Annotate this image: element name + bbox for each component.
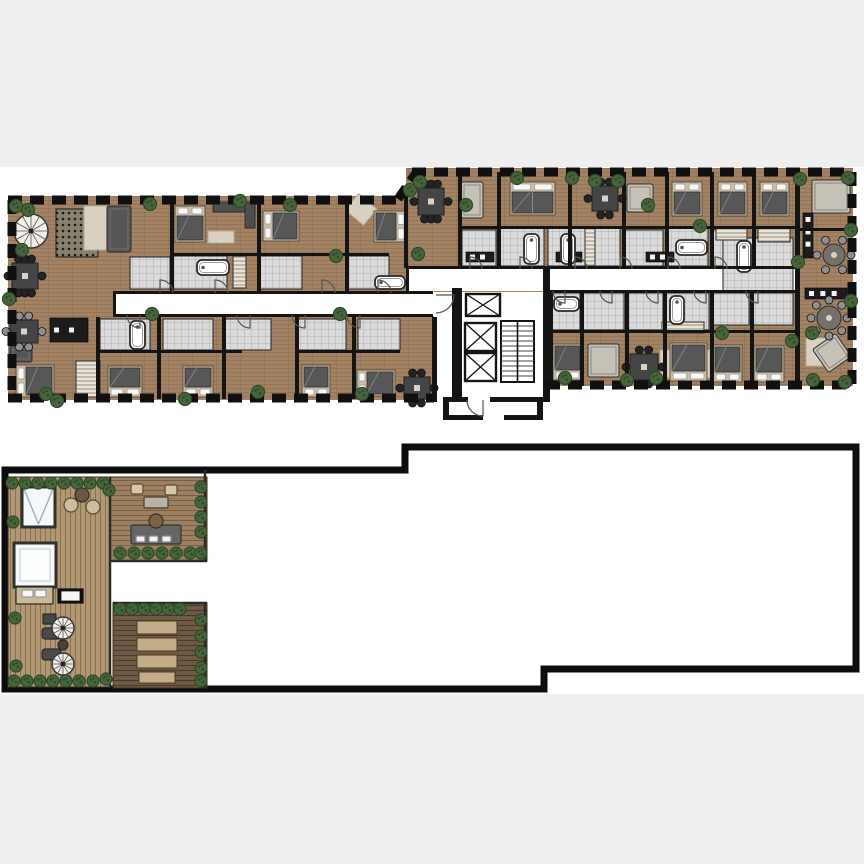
- plant-leaf: [65, 483, 68, 486]
- plant-leaf: [844, 175, 847, 178]
- burner: [832, 291, 837, 296]
- pillow: [359, 373, 365, 381]
- plant-leaf: [145, 550, 148, 553]
- pillow: [689, 184, 699, 190]
- plant-leaf: [22, 480, 25, 483]
- interior-wall: [752, 172, 756, 266]
- plant-foliage: [87, 675, 99, 687]
- plant-foliage: [195, 547, 207, 559]
- plant-icon: [330, 250, 343, 263]
- duvet: [720, 192, 745, 214]
- chair: [15, 343, 23, 351]
- daybed-pillow: [35, 590, 46, 597]
- plant-leaf: [848, 174, 850, 176]
- bed: [175, 206, 205, 242]
- duvet: [672, 345, 705, 371]
- plant-leaf: [28, 206, 30, 208]
- interior-wall: [406, 266, 797, 269]
- plant-foliage: [330, 250, 343, 263]
- pillow: [675, 184, 685, 190]
- plant-leaf: [168, 605, 170, 607]
- plant-leaf: [798, 258, 800, 260]
- chair: [838, 327, 846, 335]
- chair: [396, 384, 404, 392]
- plant-leaf: [12, 479, 14, 481]
- plant-leaf: [57, 397, 59, 399]
- interior-wall: [432, 317, 437, 402]
- interior-wall: [568, 172, 572, 266]
- chair: [417, 369, 425, 377]
- plant-icon: [794, 173, 807, 186]
- plant-leaf: [202, 502, 205, 505]
- plant-icon: [195, 526, 207, 538]
- plant-leaf: [110, 490, 113, 493]
- bathroom-tiles: [130, 257, 170, 289]
- plant-leaf: [133, 609, 136, 612]
- skylight: [22, 487, 55, 527]
- deck-planter-box: [137, 638, 177, 651]
- plant-leaf: [40, 677, 42, 679]
- plant-icon: [6, 477, 18, 489]
- interior-wall: [157, 317, 161, 399]
- plant-foliage: [21, 675, 33, 687]
- plant-foliage: [195, 496, 207, 508]
- duvet: [376, 213, 396, 240]
- interior-wall: [222, 317, 226, 399]
- outdoor-table: [144, 497, 168, 508]
- pillow: [691, 373, 705, 379]
- plant-foliage: [32, 477, 44, 489]
- plant-leaf: [22, 246, 24, 248]
- interior-wall: [504, 415, 543, 420]
- spiral-post: [61, 662, 66, 667]
- plant-leaf: [198, 678, 201, 681]
- wardrobe: [233, 256, 246, 288]
- plant-leaf: [800, 175, 802, 177]
- plant-leaf: [176, 549, 178, 551]
- plant-foliage: [58, 477, 70, 489]
- plant-leaf: [121, 609, 124, 612]
- plant-icon: [195, 646, 207, 658]
- plant-icon: [842, 172, 855, 185]
- plant-foliage: [100, 673, 112, 685]
- plant-leaf: [202, 487, 205, 490]
- plant-icon: [58, 477, 70, 489]
- plant-leaf: [414, 251, 417, 254]
- plant-leaf: [849, 178, 852, 181]
- sofa: [107, 206, 131, 252]
- table-setting: [826, 315, 832, 321]
- interior-wall: [580, 292, 584, 386]
- plant-leaf: [13, 518, 15, 520]
- bed: [108, 366, 142, 397]
- plant-foliage: [162, 603, 174, 615]
- bed: [718, 182, 747, 216]
- plant-leaf: [657, 378, 660, 381]
- plant-icon: [284, 199, 297, 212]
- table-setting: [21, 329, 27, 335]
- plant-leaf: [91, 483, 94, 486]
- plant-leaf: [198, 499, 201, 502]
- plant-foliage: [252, 386, 265, 399]
- interior-wall: [750, 292, 754, 386]
- plant-leaf: [656, 374, 658, 376]
- plant-leaf: [67, 681, 70, 684]
- sofa-cushion: [136, 536, 145, 542]
- pillow: [763, 184, 773, 190]
- chair: [597, 211, 605, 219]
- drain: [680, 246, 684, 250]
- plant-foliage: [806, 327, 819, 340]
- plant-foliage: [73, 675, 85, 687]
- plant-leaf: [591, 178, 594, 181]
- drain: [201, 266, 205, 270]
- duvet: [304, 367, 328, 387]
- plant-leaf: [517, 174, 519, 176]
- plant-leaf: [120, 549, 122, 551]
- plant-icon: [786, 335, 799, 348]
- plant-leaf: [93, 677, 95, 679]
- plant-foliage: [170, 547, 182, 559]
- plant-icon: [845, 295, 858, 308]
- bathtub: [554, 297, 579, 311]
- plant-foliage: [234, 195, 247, 208]
- plant-leaf: [202, 553, 205, 556]
- plant-leaf: [53, 398, 56, 401]
- chair: [410, 198, 418, 206]
- plant-foliage: [60, 675, 72, 687]
- plant-leaf: [77, 479, 79, 481]
- plant-leaf: [801, 179, 804, 182]
- chair: [839, 236, 847, 244]
- plant-leaf: [151, 204, 154, 207]
- plant-leaf: [648, 201, 650, 203]
- plant-foliage: [16, 244, 29, 257]
- plant-leaf: [64, 479, 66, 481]
- plant-icon: [195, 662, 207, 674]
- plant-leaf: [23, 250, 26, 253]
- plant-leaf: [186, 399, 189, 402]
- plant-foliage: [114, 603, 126, 615]
- plant-foliage: [47, 675, 59, 687]
- plant-leaf: [788, 338, 791, 341]
- plant-leaf: [286, 202, 289, 205]
- bed: [183, 366, 213, 397]
- plant-leaf: [48, 480, 51, 483]
- plant-leaf: [24, 678, 27, 681]
- plant-leaf: [851, 297, 853, 299]
- plant-icon: [162, 603, 174, 615]
- plant-icon: [621, 374, 634, 387]
- kitchen-counter: [50, 318, 88, 342]
- plant-leaf: [9, 480, 12, 483]
- plant-leaf: [198, 649, 201, 652]
- rug: [208, 231, 234, 243]
- plant-leaf: [201, 513, 203, 515]
- plant-leaf: [201, 664, 203, 666]
- interior-wall: [497, 172, 501, 266]
- plant-leaf: [50, 678, 53, 681]
- plant-leaf: [291, 205, 294, 208]
- plant-leaf: [623, 377, 626, 380]
- plant-foliage: [174, 603, 186, 615]
- plant-leaf: [144, 605, 146, 607]
- plant-icon: [9, 612, 21, 624]
- plant-foliage: [716, 327, 729, 340]
- plant-foliage: [10, 660, 22, 672]
- plant-foliage: [414, 176, 427, 189]
- duvet: [715, 347, 740, 372]
- pillow: [771, 374, 781, 380]
- plant-foliage: [3, 293, 16, 306]
- plant-leaf: [15, 614, 17, 616]
- plant-leaf: [337, 256, 340, 259]
- plant-foliage: [694, 220, 707, 233]
- bed: [374, 211, 406, 242]
- pillow: [535, 184, 553, 190]
- chair: [434, 180, 442, 188]
- plant-leaf: [202, 620, 205, 623]
- plant-icon: [195, 511, 207, 523]
- burner: [480, 255, 485, 260]
- plant-icon: [87, 675, 99, 687]
- plant-icon: [234, 195, 247, 208]
- plant-leaf: [363, 394, 366, 397]
- plant-leaf: [15, 681, 18, 684]
- skylight: [14, 543, 56, 587]
- plant-leaf: [652, 375, 655, 378]
- spiral-post: [61, 626, 66, 631]
- pillow: [192, 208, 202, 214]
- interior-wall: [452, 288, 462, 402]
- spiral-staircase: [52, 617, 74, 639]
- plant-icon: [138, 603, 150, 615]
- plant-leaf: [129, 606, 132, 609]
- plant-icon: [150, 603, 162, 615]
- plant-icon: [414, 176, 427, 189]
- plant-leaf: [418, 250, 420, 252]
- plant-icon: [10, 200, 23, 213]
- chair: [444, 198, 452, 206]
- deck-planter-box: [137, 621, 177, 634]
- interior-wall: [710, 172, 714, 266]
- chair: [38, 328, 46, 336]
- plant-foliage: [34, 675, 46, 687]
- plant-leaf: [332, 253, 335, 256]
- plant-leaf: [847, 298, 850, 301]
- daybed-pillow: [22, 590, 33, 597]
- plant-leaf: [241, 201, 244, 204]
- plant-icon: [170, 547, 182, 559]
- plant-leaf: [258, 388, 260, 390]
- plant-leaf: [87, 480, 90, 483]
- plant-leaf: [53, 677, 55, 679]
- bathtub: [524, 234, 539, 264]
- interior-wall: [710, 292, 714, 386]
- plant-leaf: [813, 333, 816, 336]
- plant-leaf: [794, 259, 797, 262]
- plant-foliage: [845, 295, 858, 308]
- plant-icon: [71, 477, 83, 489]
- plant-icon: [73, 675, 85, 687]
- plant-leaf: [198, 529, 201, 532]
- spiral-staircase: [14, 214, 48, 248]
- plant-icon: [566, 172, 579, 185]
- plant-foliage: [612, 175, 625, 188]
- plant-leaf: [39, 483, 42, 486]
- plant-icon: [174, 603, 186, 615]
- plant-leaf: [12, 203, 15, 206]
- duvet: [177, 216, 203, 240]
- burner: [820, 291, 825, 296]
- plant-leaf: [619, 181, 622, 184]
- plant-leaf: [106, 675, 108, 677]
- chair: [847, 251, 855, 259]
- plant-icon: [195, 496, 207, 508]
- plant-leaf: [421, 182, 424, 185]
- bathroom-tiles: [163, 319, 213, 350]
- plant-leaf: [198, 633, 201, 636]
- plant-leaf: [336, 252, 338, 254]
- plant-leaf: [341, 314, 344, 317]
- plant-leaf: [649, 205, 652, 208]
- duvet: [273, 213, 297, 239]
- plant-icon: [195, 630, 207, 642]
- plant-foliage: [156, 547, 168, 559]
- plant-foliage: [839, 376, 852, 389]
- plant-leaf: [201, 483, 203, 485]
- plant-leaf: [358, 391, 361, 394]
- pillow: [398, 229, 404, 240]
- plant-leaf: [90, 678, 93, 681]
- drain: [675, 300, 679, 304]
- wardrobe: [585, 228, 595, 266]
- drain: [742, 245, 746, 249]
- plant-leaf: [12, 615, 15, 618]
- plant-leaf: [201, 498, 203, 500]
- plant-leaf: [5, 296, 8, 299]
- plant-leaf: [416, 179, 419, 182]
- plant-icon: [184, 547, 196, 559]
- plant-foliage: [114, 547, 126, 559]
- plant-icon: [511, 172, 524, 185]
- plant-icon: [694, 220, 707, 233]
- plant-leaf: [14, 677, 16, 679]
- plant-leaf: [847, 227, 850, 230]
- floor-plan: [0, 0, 864, 864]
- duvet: [185, 368, 211, 387]
- interior-wall: [406, 266, 409, 292]
- plant-leaf: [568, 175, 571, 178]
- plant-foliage: [138, 603, 150, 615]
- chair: [584, 195, 592, 203]
- plant-leaf: [76, 678, 79, 681]
- plant-foliage: [195, 614, 207, 626]
- plant-foliage: [195, 481, 207, 493]
- plant-leaf: [63, 678, 66, 681]
- plant-leaf: [14, 522, 17, 525]
- plant-leaf: [13, 483, 16, 486]
- plant-leaf: [156, 605, 158, 607]
- plant-leaf: [201, 632, 203, 634]
- plant-leaf: [198, 484, 201, 487]
- plant-foliage: [195, 526, 207, 538]
- plant-leaf: [595, 177, 597, 179]
- plant-leaf: [420, 178, 422, 180]
- plant-foliage: [195, 646, 207, 658]
- plant-leaf: [42, 391, 45, 394]
- duvet: [674, 192, 700, 214]
- plant-leaf: [131, 550, 134, 553]
- plant-leaf: [180, 605, 182, 607]
- bathroom-tiles: [713, 293, 749, 325]
- plant-icon: [792, 256, 805, 269]
- chair: [822, 236, 830, 244]
- plant-icon: [356, 388, 369, 401]
- plant-icon: [195, 675, 207, 687]
- wicker-chair: [86, 500, 100, 514]
- plant-leaf: [799, 262, 802, 265]
- plant-leaf: [202, 681, 205, 684]
- plant-leaf: [700, 222, 702, 224]
- plant-foliage: [146, 308, 159, 321]
- plant-icon: [8, 675, 20, 687]
- plant-leaf: [201, 616, 203, 618]
- plant-icon: [650, 372, 663, 385]
- chair: [15, 312, 23, 320]
- plant-leaf: [618, 177, 620, 179]
- burner: [650, 255, 655, 260]
- bathroom-tiles: [751, 293, 793, 325]
- plant-foliage: [195, 662, 207, 674]
- plant-icon: [179, 393, 192, 406]
- plant-leaf: [10, 299, 13, 302]
- plant-leaf: [117, 606, 120, 609]
- plant-icon: [10, 660, 22, 672]
- interior-wall: [665, 172, 669, 266]
- chair: [434, 215, 442, 223]
- duvet: [762, 192, 787, 214]
- deck-planter-box: [137, 655, 177, 668]
- plant-leaf: [185, 395, 187, 397]
- corridor-left: [113, 293, 433, 315]
- plant-icon: [839, 376, 852, 389]
- plant-icon: [612, 175, 625, 188]
- plant-foliage: [650, 372, 663, 385]
- plant-leaf: [103, 676, 106, 679]
- plant-icon: [412, 248, 425, 261]
- table-setting: [641, 364, 647, 370]
- spiral-staircase: [52, 653, 74, 675]
- interior-wall: [549, 330, 797, 333]
- plant-leaf: [27, 677, 29, 679]
- plant-leaf: [201, 528, 203, 530]
- plant-icon: [642, 199, 655, 212]
- plant-icon: [22, 204, 35, 217]
- pillow: [730, 374, 740, 380]
- plant-leaf: [35, 480, 38, 483]
- plant-leaf: [94, 681, 97, 684]
- plant-foliage: [334, 308, 347, 321]
- interior-wall: [443, 415, 483, 420]
- plant-foliage: [511, 172, 524, 185]
- plant-leaf: [202, 668, 205, 671]
- plant-leaf: [135, 553, 138, 556]
- plant-leaf: [121, 553, 124, 556]
- plant-leaf: [814, 380, 817, 383]
- plant-leaf: [54, 681, 57, 684]
- plant-icon: [195, 614, 207, 626]
